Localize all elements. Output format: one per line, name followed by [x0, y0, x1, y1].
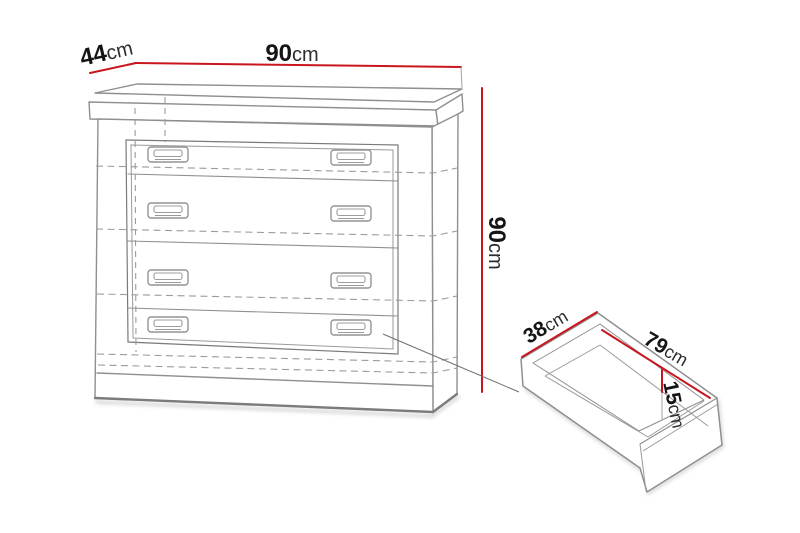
depth-unit: cm: [104, 37, 135, 64]
furniture-dimension-diagram: 44cm 90cm 90cm: [0, 0, 800, 533]
drawer-handle: [331, 150, 371, 165]
diagram-canvas: 44cm 90cm 90cm: [0, 0, 800, 533]
drawer-handle: [331, 320, 371, 335]
width-value: 90: [265, 40, 292, 67]
drawer-handle: [148, 317, 188, 332]
drawer-handle: [148, 270, 188, 285]
height-unit: cm: [484, 243, 506, 270]
width-dimension-label: 90cm: [265, 40, 318, 67]
cabinet-side-panel: [432, 114, 458, 412]
drawer-handle: [148, 147, 188, 162]
cabinet-top-face: [95, 84, 462, 102]
drawer-detail-illustration: 38cm 79cm 15cm: [519, 304, 722, 493]
width-witness-line: [461, 67, 462, 88]
width-unit: cm: [292, 44, 319, 66]
depth-dimension-label: 44cm: [77, 34, 135, 72]
drawer-handle: [148, 203, 188, 218]
drawer-handle: [331, 206, 371, 221]
cabinet-illustration: [89, 84, 463, 416]
cabinet-front-face: [95, 119, 433, 412]
height-value: 90: [483, 216, 510, 243]
drawer-handle: [331, 273, 371, 288]
height-dimension-label: 90cm: [483, 216, 510, 269]
